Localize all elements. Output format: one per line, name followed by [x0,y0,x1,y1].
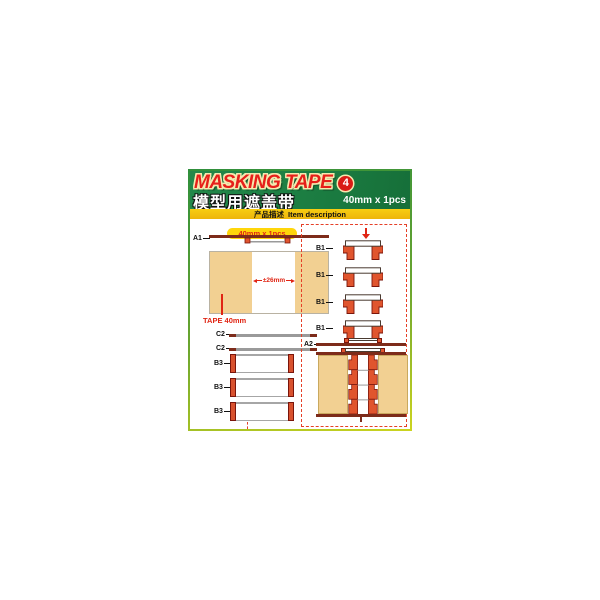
b1-part-diagram-3 [343,294,383,314]
b1-part-diagram-1 [343,240,383,260]
down-arrow-icon [362,228,370,239]
cut-dash-line [247,422,248,429]
product-number-badge: 4 [338,176,353,191]
tape-roll-left [210,252,252,313]
part-label-b3-3: B3 [214,408,231,415]
part-label-b1-2: B1 [316,272,333,279]
assembly-panel: B1 B1 B1 [301,224,407,427]
description-en: Item description [288,210,346,219]
roll-tape-left [318,355,348,414]
part-label-b1-1: B1 [316,245,333,252]
header-band: MASKING TAPE 4 模型用遮盖带 40mm x 1pcs [190,171,410,209]
b1-part-diagram-2 [343,267,383,287]
roll-bottom-stub [360,417,362,422]
roll-core-stack [348,355,378,414]
tape-width-label: TAPE 40mm [203,316,246,325]
b3-part-diagram-3 [230,402,294,421]
part-label-b3-1: B3 [214,360,231,367]
b3-part-diagram-2 [230,378,294,397]
part-label-b1-4: B1 [316,325,333,332]
product-spec: 40mm x 1pcs [343,195,406,206]
b3-part-diagram-1 [230,354,294,373]
b1-part-diagram-4 [343,320,383,340]
arrow-right-icon [291,279,295,283]
description-bar: 产品描述 Item description [190,209,410,219]
part-label-a1: A1 [193,235,210,242]
page-background: MASKING TAPE 4 模型用遮盖带 40mm x 1pcs 产品描述 I… [0,0,600,600]
label-inner: MASKING TAPE 4 模型用遮盖带 40mm x 1pcs 产品描述 I… [190,171,410,429]
part-label-b3-2: B3 [214,384,231,391]
roll-tape-right [378,355,408,414]
dimension-arrow: ±26mm [253,277,295,284]
tape-leader-line [221,294,223,315]
part-label-b1-3: B1 [316,299,333,306]
description-cn: 产品描述 [254,209,284,220]
dimension-value: ±26mm [262,277,286,284]
masking-tape-product-label: MASKING TAPE 4 模型用遮盖带 40mm x 1pcs 产品描述 I… [188,169,412,431]
